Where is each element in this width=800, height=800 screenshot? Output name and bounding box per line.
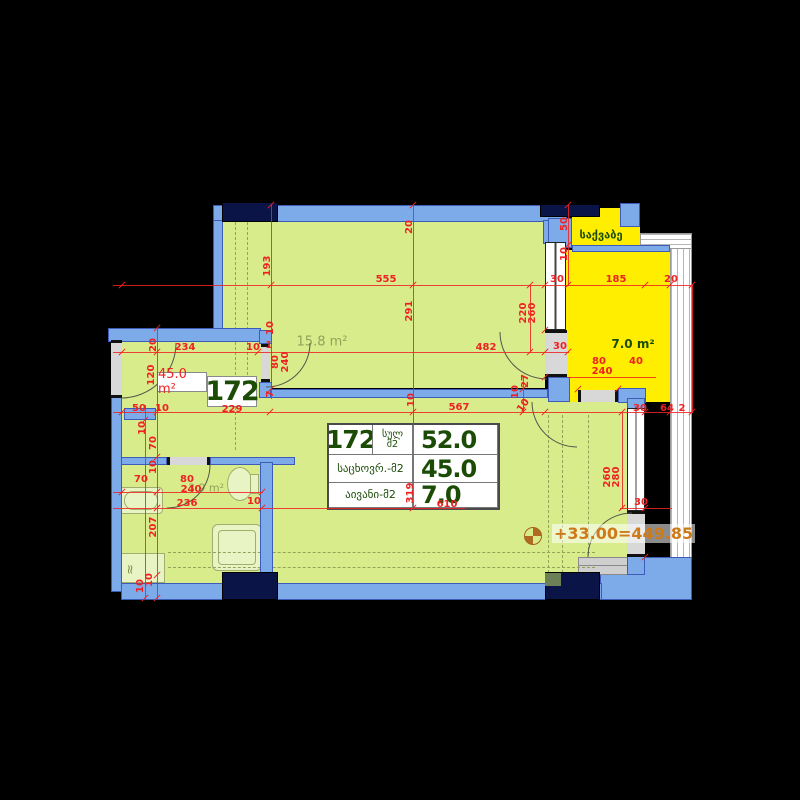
dimension-label: 319 — [406, 483, 416, 504]
level-text: +33.00=449.85 — [552, 524, 695, 543]
dimension-label: 64 — [660, 404, 674, 414]
dimension-label: 20 — [664, 275, 678, 285]
table-balcony-label: აივანი-მ2 — [329, 483, 413, 508]
apartment-number-text: 172 — [205, 376, 258, 407]
dimension-label: 70 — [134, 475, 148, 485]
area-badge: 45.0 m² — [157, 372, 207, 392]
dimension-label: 50 — [132, 404, 146, 414]
dimension-label: 10 — [246, 343, 260, 353]
table-apt-number: 172 — [329, 425, 373, 455]
dimension-label: 30 — [550, 275, 564, 285]
table-living-value: 45.0 — [413, 455, 498, 483]
apartment-number-badge: 172 — [207, 376, 257, 407]
dimension-label: 20 — [149, 338, 159, 352]
dimension-label: 40 — [629, 357, 643, 367]
dimension-label: 20 — [405, 220, 415, 234]
dimension-line — [568, 377, 656, 378]
dimension-label: 2 — [679, 404, 686, 414]
dimension-label: 10 — [155, 404, 169, 414]
dimension-label: 10 — [145, 573, 155, 587]
dimension-label: 482 — [476, 343, 497, 353]
dimension-label: 240 — [281, 352, 291, 373]
dimension-label: 280 — [612, 467, 622, 488]
table-living-label: საცხოვრ.-მ2 — [329, 455, 413, 483]
dimension-label: 27 — [521, 374, 531, 388]
dimension-label: 291 — [405, 301, 415, 322]
table-total-label: სულმ2 — [373, 425, 413, 455]
dimension-label: 10 — [138, 421, 148, 435]
level-marker-icon — [524, 527, 542, 545]
dimension-label: 555 — [376, 275, 397, 285]
dimension-label: 185 — [606, 275, 627, 285]
floor-plan-canvas: ≈ 45.0 m² 172 172 სულმ2 52.0 საცხოვრ.-მ2… — [0, 0, 800, 800]
dimension-label: 120 — [147, 365, 157, 386]
dimension-line — [622, 412, 623, 509]
dimension-label: 50 — [560, 217, 570, 231]
dimension-label: 10 — [266, 321, 276, 335]
dimension-label: 10 — [560, 247, 570, 261]
dimension-label: 10 — [149, 460, 159, 474]
dimension-label: 7 — [266, 391, 276, 398]
dimension-label: 30 — [633, 404, 647, 414]
dimension-label: 1 — [266, 341, 273, 351]
dimension-label: 10 — [407, 393, 417, 407]
dimension-label: 10 — [511, 385, 521, 399]
dimension-label: 10 — [136, 579, 146, 593]
dimension-label: 70 — [149, 436, 159, 450]
dimension-line — [113, 412, 693, 413]
dimension-label: 234 — [175, 343, 196, 353]
dimension-label: 207 — [149, 517, 159, 538]
dimension-line — [620, 508, 672, 509]
dimension-label: 10 — [247, 497, 261, 507]
dimension-label: 30 — [553, 342, 567, 352]
area-badge-text: 45.0 m² — [158, 367, 206, 397]
dimension-label: 229 — [222, 405, 243, 415]
dimension-label: 193 — [263, 256, 273, 277]
dimension-line — [113, 285, 693, 286]
table-total-value: 52.0 — [413, 425, 498, 455]
dimension-label: 240 — [181, 485, 202, 495]
dimension-label: 610 — [437, 500, 458, 510]
dimension-label: 236 — [177, 499, 198, 509]
dimension-line — [271, 205, 272, 399]
dimension-line — [692, 285, 693, 413]
dimension-label: 30 — [634, 498, 648, 508]
dimension-label: 240 — [592, 367, 613, 377]
dimension-label: 260 — [528, 303, 538, 324]
dimension-label: 567 — [449, 403, 470, 413]
door-swing-arcs — [0, 0, 800, 800]
dimension-line — [413, 205, 414, 510]
